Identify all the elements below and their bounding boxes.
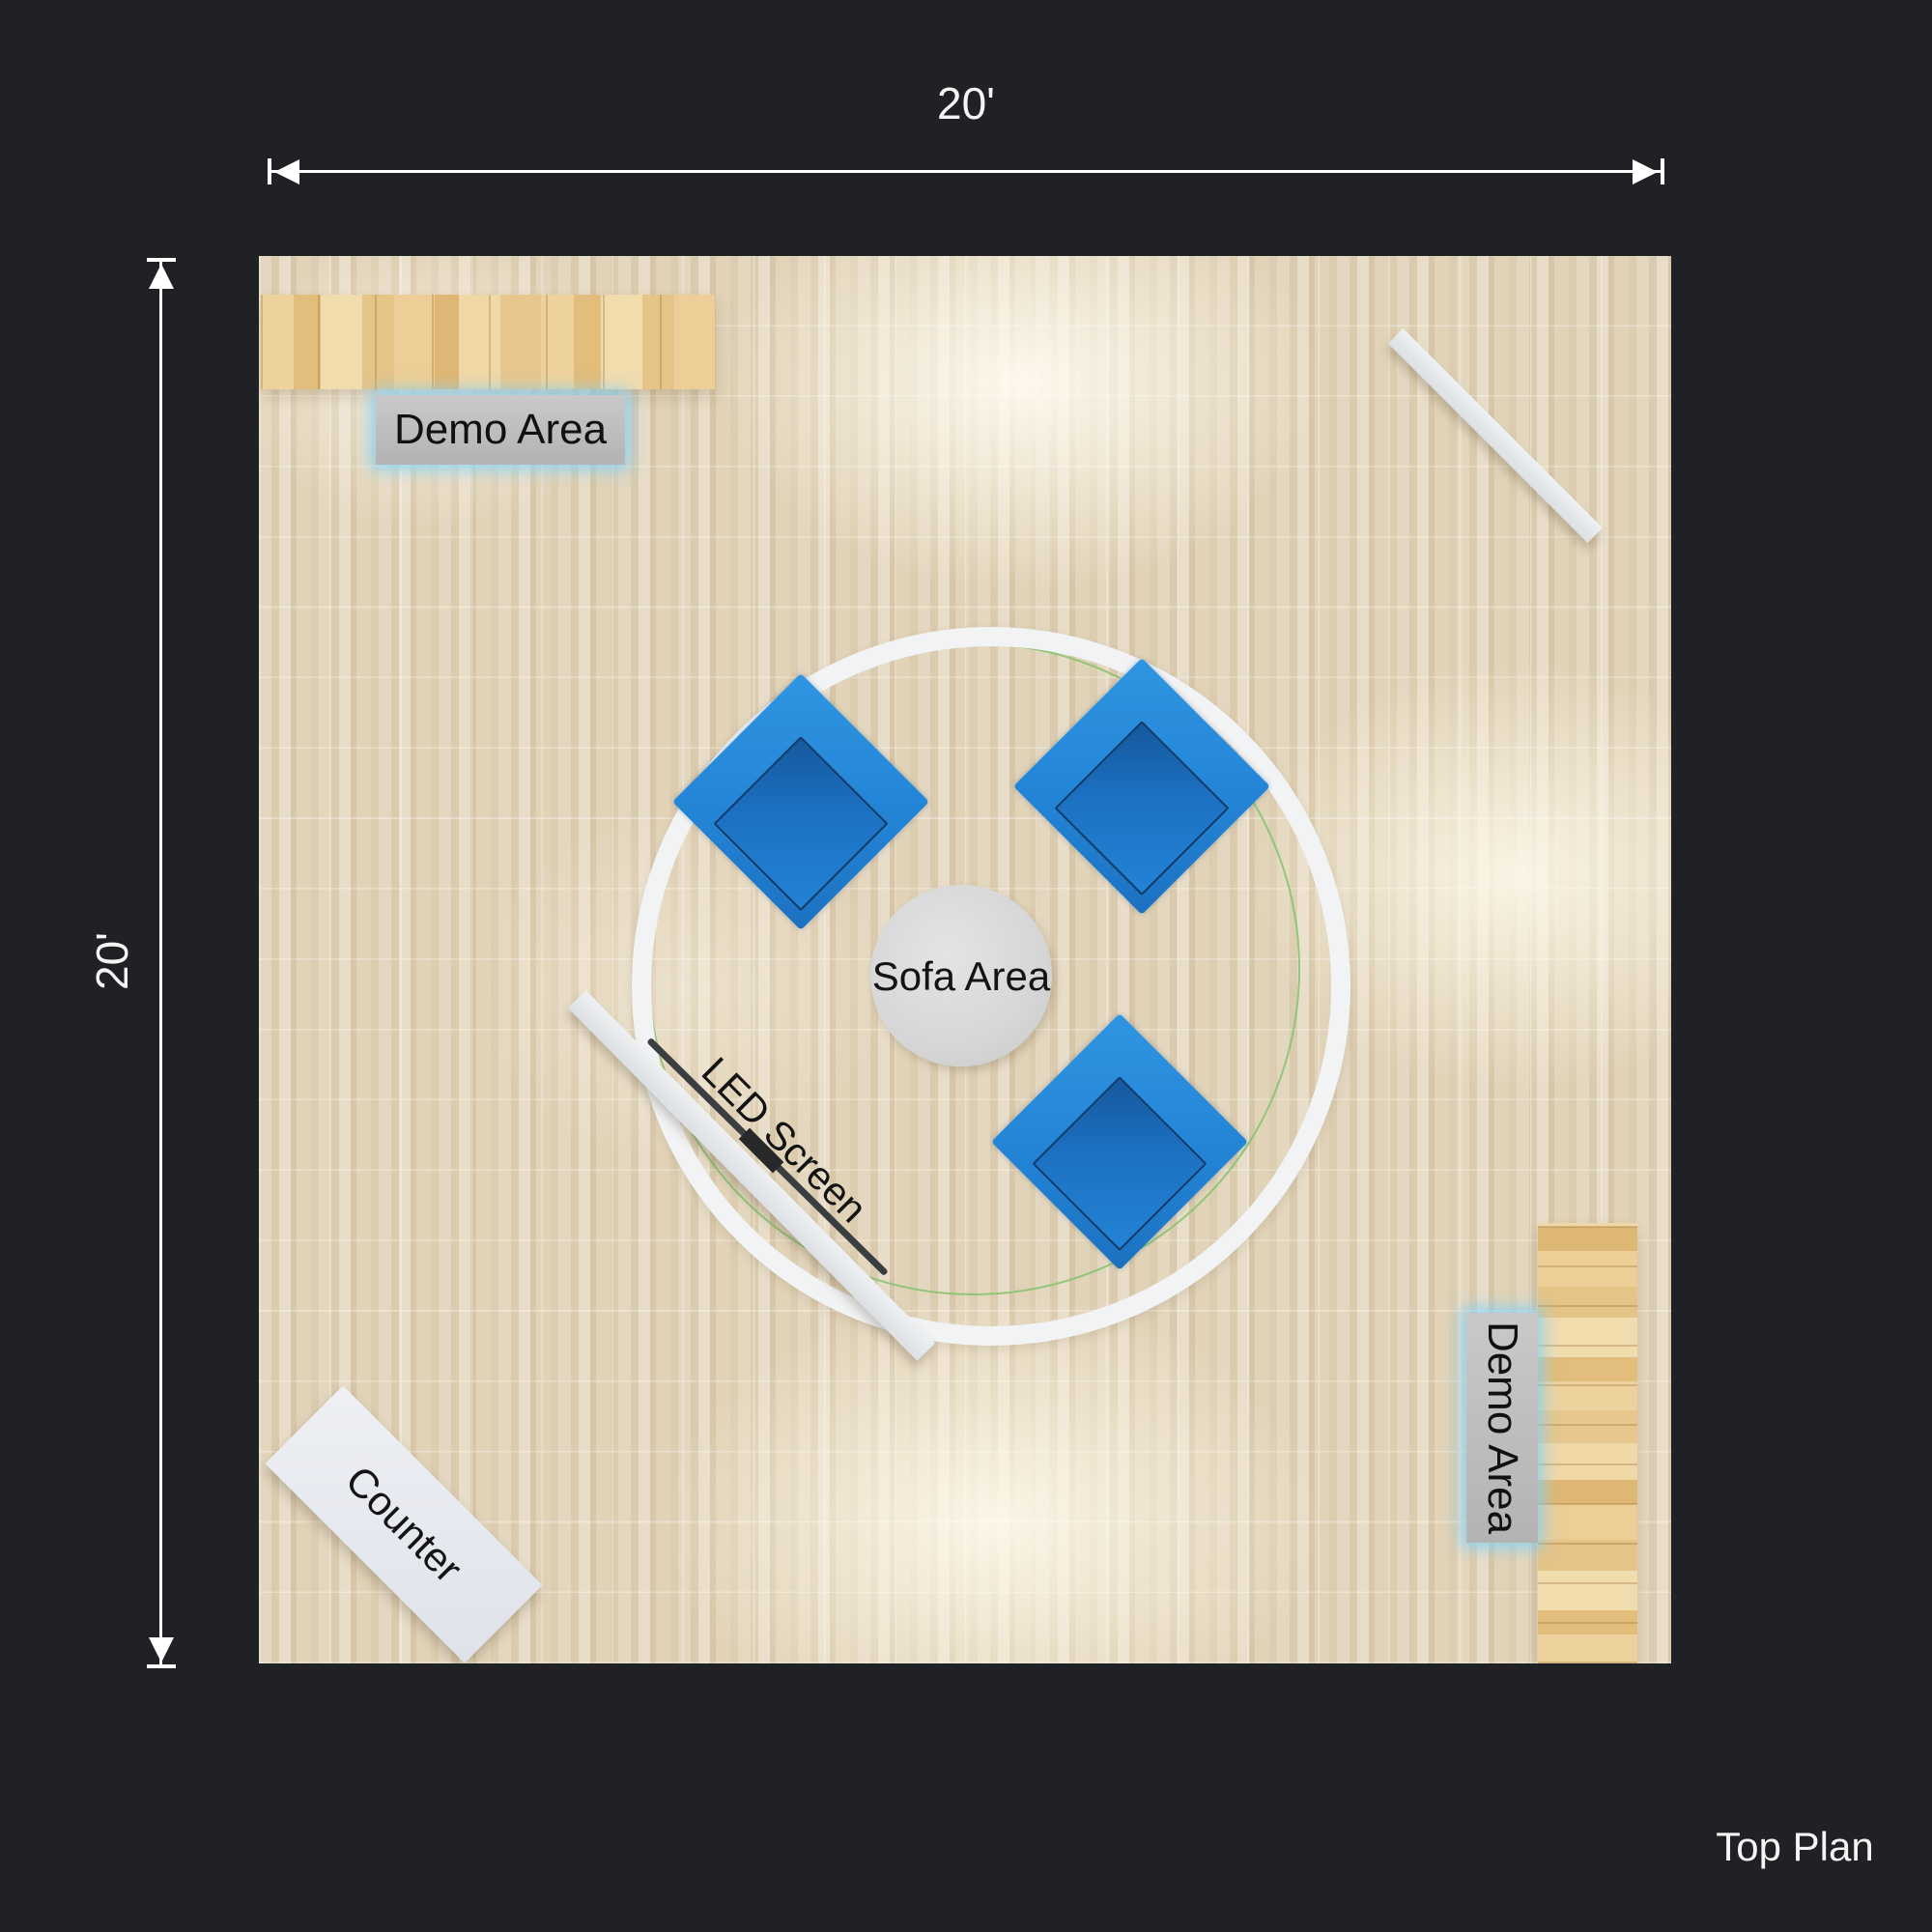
booth-floor: Demo Area Sofa Area LED Screen Counter D…	[259, 256, 1671, 1663]
top-dimension-left-arrow	[274, 159, 299, 185]
top-dimension-right-arrow	[1633, 159, 1658, 185]
left-dimension-top-cap	[147, 258, 176, 262]
demo-area-right-label: Demo Area	[1466, 1313, 1538, 1543]
top-dimension-right-cap	[1661, 158, 1664, 185]
left-dimension-bottom-cap	[147, 1664, 176, 1668]
top-dimension-line	[271, 170, 1661, 173]
width-dimension-label: 20'	[898, 77, 1034, 129]
demo-area-top-text: Demo Area	[394, 406, 607, 454]
height-dimension-label: 20'	[86, 903, 138, 1019]
demo-area-top-label: Demo Area	[376, 395, 625, 465]
left-dimension-bottom-arrow	[149, 1637, 174, 1662]
left-dimension-line	[159, 262, 162, 1664]
demo-area-right-text: Demo Area	[1466, 1313, 1538, 1543]
demo-counter-right	[1538, 1223, 1637, 1663]
sofa-area-label: Sofa Area	[816, 953, 1106, 1000]
top-dimension-left-cap	[268, 158, 271, 185]
demo-counter-top	[261, 295, 715, 389]
left-dimension-top-arrow	[149, 264, 174, 289]
plan-title: Top Plan	[1698, 1824, 1891, 1870]
